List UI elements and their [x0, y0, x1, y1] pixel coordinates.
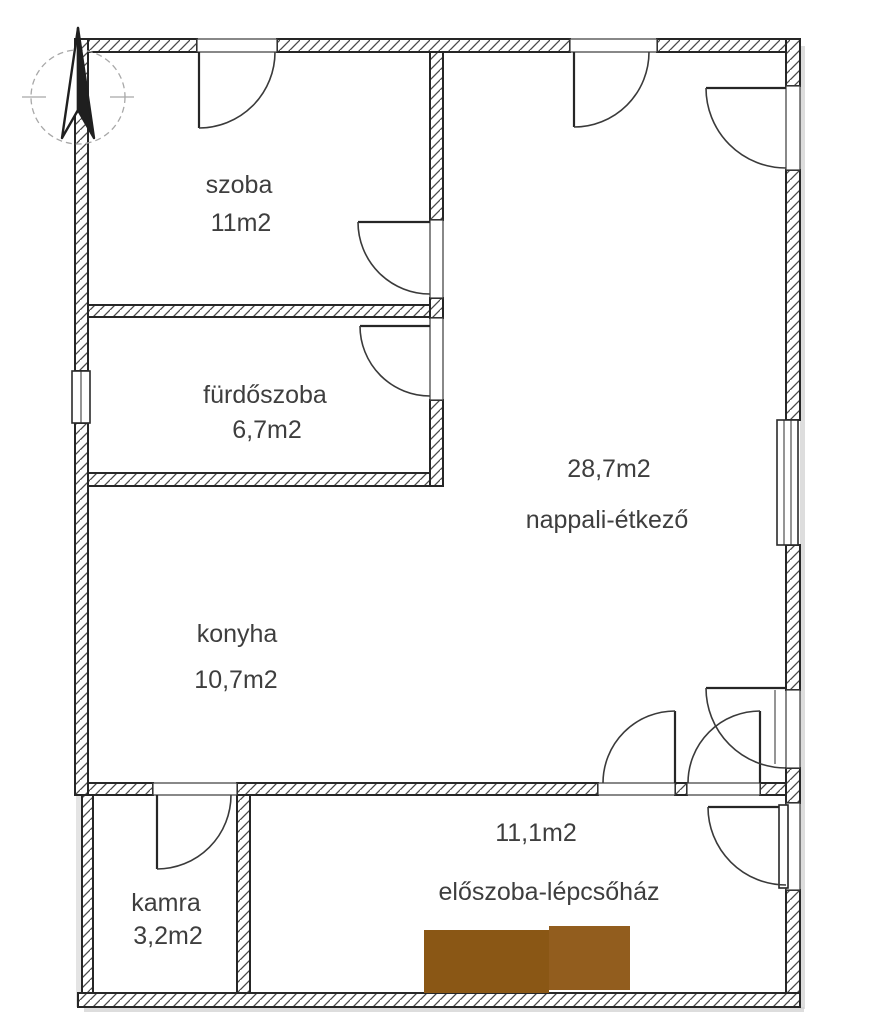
room-name-kamra: kamra: [131, 889, 201, 917]
wall-szoba-furdo: [88, 305, 430, 317]
opening-szoba-top: [197, 39, 277, 52]
wall-right-5: [786, 890, 800, 1007]
door-arc-kamra: [157, 795, 231, 869]
window-right-icon: [777, 420, 798, 545]
door-arc-right-top: [706, 88, 786, 168]
room-labels: szoba 11m2 fürdőszoba 6,7m2 28,7m2 nappa…: [131, 171, 688, 950]
wall-furdo-bottom: [88, 473, 430, 486]
wall-bottom: [78, 993, 800, 1007]
wall-right-3: [786, 545, 800, 690]
wall-right-4: [786, 768, 800, 803]
door-arc-szoba-side: [358, 222, 430, 294]
wall-szoba-nappali-2: [430, 298, 443, 318]
wall-eloszoba-4: [760, 783, 786, 795]
wall-eloszoba-3: [675, 783, 687, 795]
wall-furdo-right: [430, 400, 443, 486]
door-arc-nappali-bl: [603, 711, 675, 783]
opening-furdo: [430, 318, 443, 400]
room-area-szoba: 11m2: [211, 209, 272, 237]
room-area-kamra: 3,2m2: [133, 922, 202, 950]
floor-plan-page: szoba 11m2 fürdőszoba 6,7m2 28,7m2 nappa…: [0, 0, 888, 1024]
walls: [75, 39, 800, 1007]
door-arc-nappali-top: [574, 52, 649, 127]
room-area-konyha: 10,7m2: [194, 666, 277, 694]
door-panel-entry: [779, 805, 788, 888]
room-area-eloszoba: 11,1m2: [495, 819, 577, 847]
wall-top-1: [75, 39, 197, 52]
stairs-block-left: [424, 930, 549, 993]
room-name-furdoszoba: fürdőszoba: [203, 381, 327, 409]
room-name-szoba: szoba: [206, 171, 273, 199]
wall-right-1: [786, 39, 800, 86]
room-area-furdoszoba: 6,7m2: [232, 416, 301, 444]
wall-top-3: [657, 39, 800, 52]
door-openings: [153, 39, 800, 890]
opening-right-middle: [786, 690, 800, 768]
wall-szoba-nappali-1: [430, 52, 443, 220]
floor-plan-drawing: szoba 11m2 fürdőszoba 6,7m2 28,7m2 nappa…: [0, 0, 888, 1024]
opening-nappali-top: [570, 39, 657, 52]
wall-right-2: [786, 170, 800, 420]
opening-nappali-bottom-left: [598, 783, 675, 795]
opening-kamra: [153, 783, 237, 795]
room-name-nappali: nappali-étkező: [526, 506, 689, 534]
opening-right-top: [786, 86, 800, 170]
opening-nappali-bottom-right: [687, 783, 760, 795]
door-arc-furdo: [360, 326, 430, 396]
stairs-block-right: [549, 926, 630, 990]
stairs: [424, 926, 630, 993]
wall-eloszoba-1: [88, 783, 153, 795]
opening-szoba-side: [430, 220, 443, 298]
wall-left-lower: [82, 795, 93, 998]
wall-left-middle: [75, 423, 88, 795]
door-arc-nappali-br: [688, 711, 760, 783]
wall-kamra-right: [237, 795, 250, 993]
room-name-eloszoba: előszoba-lépcsőház: [439, 878, 660, 906]
room-area-nappali: 28,7m2: [567, 455, 650, 483]
door-arc-szoba-top: [199, 52, 275, 128]
wall-eloszoba-2: [237, 783, 598, 795]
door-arc-entry: [708, 807, 786, 885]
door-arc-right-middle: [706, 688, 786, 768]
room-name-konyha: konyha: [197, 620, 278, 648]
wall-top-2: [277, 39, 570, 52]
